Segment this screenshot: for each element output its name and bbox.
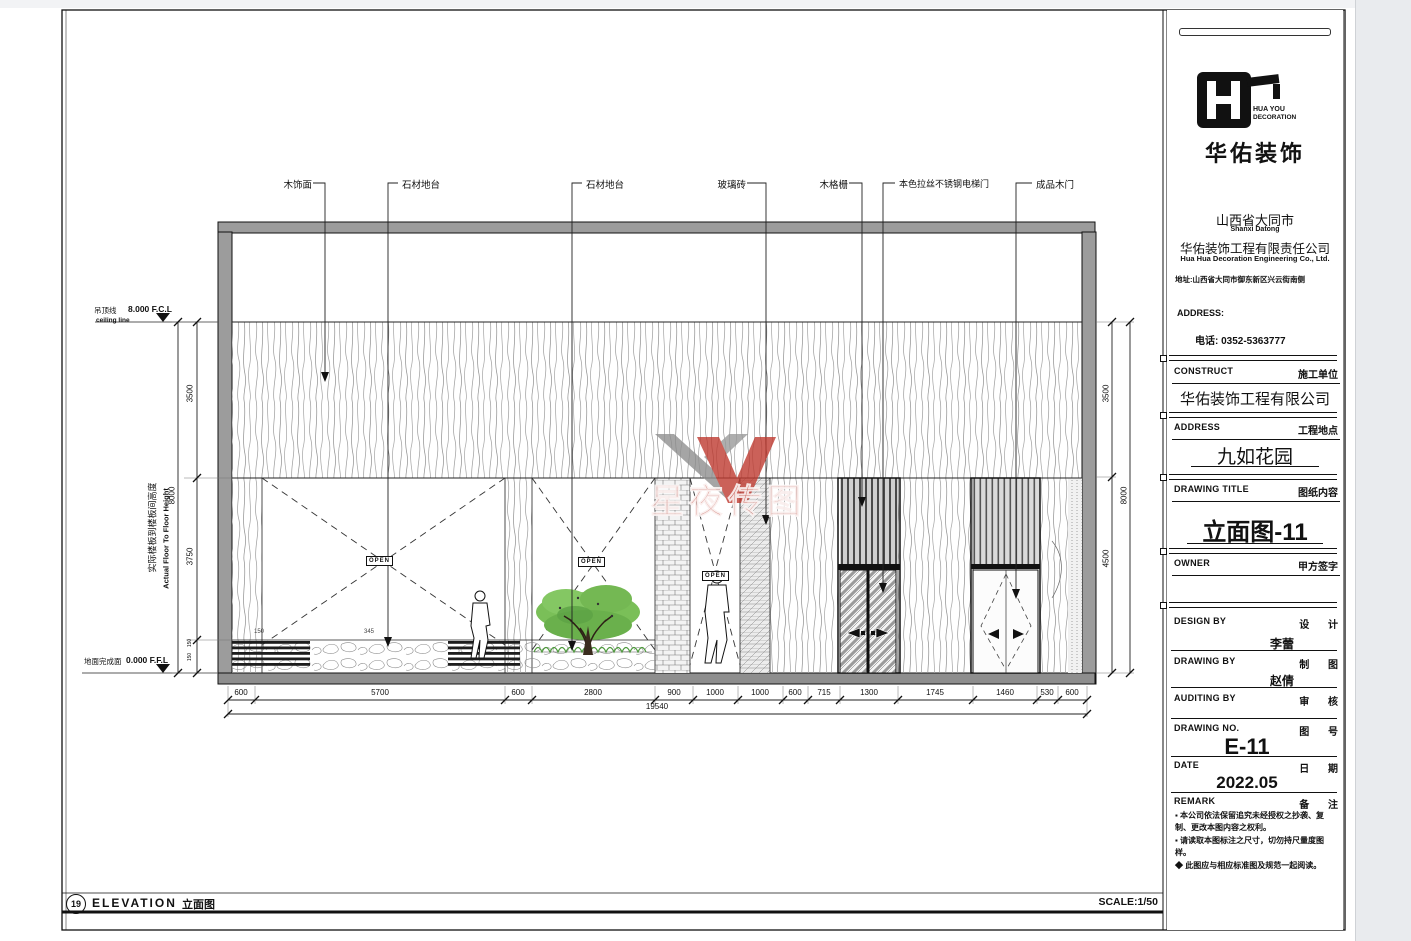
remark-label-cn: 备 注: [1299, 796, 1346, 811]
owner-label-cn: 甲方签字: [1298, 558, 1338, 573]
remark-note: ▪ 本公司依法保留追究未经授权之抄袭、复制、更改本图内容之权利。: [1175, 810, 1337, 835]
divider: [1169, 474, 1337, 480]
rule: [1171, 792, 1337, 793]
construct-label-en: CONSTRUCT: [1174, 366, 1233, 381]
divider: [1169, 602, 1337, 608]
dim-b3: 600: [498, 688, 538, 697]
dim-right-seg-2: 4500: [1102, 539, 1111, 579]
stone-platform: [232, 640, 655, 673]
dim-b4: 2800: [563, 688, 623, 697]
dim-b11: 1745: [912, 688, 958, 697]
title-block-top-bar: [1179, 28, 1331, 36]
dim-b9: 715: [806, 688, 842, 697]
dim-left-seg-2: 3750: [186, 537, 195, 577]
owner-row: OWNER 甲方签字: [1172, 558, 1340, 576]
drawing-title-label-cn: 图纸内容: [1298, 484, 1338, 499]
construct-value: 华佑装饰工程有限公司: [1167, 388, 1343, 409]
callout-glass-brick: 玻璃砖: [706, 177, 746, 191]
divider: [1169, 548, 1337, 554]
owner-label-en: OWNER: [1174, 558, 1210, 573]
callout-elevator-door: 本色拉丝不锈钢电梯门: [899, 177, 989, 190]
floor-level-label: 地面完成面: [84, 656, 122, 667]
draft-row: DRAWING BY 制 图: [1172, 656, 1340, 673]
date-value: 2022.05: [1177, 773, 1317, 793]
dim-b2: 5700: [340, 688, 420, 697]
dim-b5: 900: [654, 688, 694, 697]
rule: [1171, 756, 1337, 757]
design-row: DESIGN BY 设 计: [1172, 616, 1340, 633]
dim-platform-1: 150: [254, 629, 264, 635]
firm-phone: 电话: 0352-5363777: [1195, 332, 1286, 347]
divider: [1169, 412, 1337, 418]
site-row: ADDRESS 工程地点: [1172, 422, 1340, 440]
draft-label-cn: 制 图: [1299, 656, 1346, 671]
firm-address: 地址:山西省大同市御东新区兴云街南侧: [1175, 274, 1305, 285]
figure-number-badge: 19: [66, 894, 86, 914]
callout-wood-grille: 木格栅: [804, 177, 848, 191]
site-label-en: ADDRESS: [1174, 422, 1220, 437]
draft-label-en: DRAWING BY: [1174, 656, 1236, 671]
floor-height-axis-en: Actual Floor To Floor Height: [162, 439, 171, 639]
dim-b6: 1000: [692, 688, 738, 697]
drawing-title-label-en: DRAWING TITLE: [1174, 484, 1249, 499]
callout-stone-platform-2: 石材地台: [586, 177, 624, 191]
brand-en-line2: DECORATION: [1253, 114, 1296, 121]
callout-wood-finish: 木饰面: [258, 177, 312, 191]
dim-right-overall: 8000: [1120, 476, 1129, 516]
footer-scale: SCALE:1/50: [1040, 896, 1158, 908]
audit-label-cn: 审 核: [1299, 693, 1346, 708]
open-label-1: OPEN: [366, 556, 393, 566]
ceiling-level-value: 8.000 F.C.L: [128, 304, 172, 314]
footer-title-en: ELEVATION: [92, 896, 177, 910]
dim-b12: 1460: [982, 688, 1028, 697]
dim-b1: 600: [221, 688, 261, 697]
audit-label-en: AUDITING BY: [1174, 693, 1236, 708]
footer-rules: [62, 893, 1163, 912]
dim-left-step-2: 150: [187, 645, 193, 669]
construct-row: CONSTRUCT 施工单位: [1172, 366, 1340, 384]
audit-row: AUDITING BY 审 核: [1172, 693, 1340, 710]
open-label-3: OPEN: [702, 571, 729, 581]
rule: [1171, 718, 1337, 719]
firm-address-label: ADDRESS:: [1177, 308, 1224, 318]
callout-stone-platform-1: 石材地台: [402, 177, 440, 191]
dim-left-overall: 8000: [168, 476, 177, 516]
firm-city-en: Shanxi Datong: [1167, 226, 1343, 233]
site-label-cn: 工程地点: [1298, 422, 1338, 437]
remark-notes: ▪ 本公司依法保留追究未经授权之抄袭、复制、更改本图内容之权利。 ▪ 请读取本图…: [1175, 810, 1337, 872]
site-value-underline: [1191, 466, 1319, 467]
remark-note: ▪ 请读取本图标注之尺寸，切勿持尺量度图样。: [1175, 835, 1337, 860]
drawing-title-row: DRAWING TITLE 图纸内容: [1172, 484, 1340, 502]
design-label-cn: 设 计: [1299, 616, 1346, 631]
site-value: 九如花园: [1167, 442, 1343, 469]
ceiling-level-label: 吊顶线: [94, 305, 117, 316]
logo-roller-handle: [1273, 84, 1280, 99]
ceiling-level-sub: ceiling line: [96, 317, 130, 324]
rule: [1171, 687, 1337, 688]
dim-left-seg-1: 3500: [186, 374, 195, 414]
callout-finished-wood-door: 成品木门: [1036, 177, 1074, 191]
dim-b14: 600: [1054, 688, 1090, 697]
construct-label-cn: 施工单位: [1298, 366, 1338, 381]
dim-right-seg-1: 3500: [1102, 374, 1111, 414]
watermark-text: 星夜传图: [650, 474, 806, 523]
firm-name-en: Hua Hua Decoration Engineering Co., Ltd.: [1167, 254, 1343, 263]
rule: [1171, 650, 1337, 651]
floor-height-axis-cn: 实际楼板到楼板间高度: [146, 453, 159, 603]
title-block: HUA YOU DECORATION 华佑装饰 山西省大同市 Shanxi Da…: [1167, 10, 1343, 930]
divider: [1169, 355, 1337, 361]
dim-platform-2: 345: [364, 629, 374, 635]
remark-note: ◆ 此图应与相应标准图及规范一起阅读。: [1175, 860, 1337, 872]
drawing-sheet: 木饰面 石材地台 石材地台 玻璃砖 木格栅 本色拉丝不锈钢电梯门 成品木门 OP…: [0, 0, 1411, 941]
drawing-title-value: 立面图-11: [1167, 512, 1343, 547]
elevator-door: [838, 478, 900, 673]
dim-b10: 1300: [846, 688, 892, 697]
open-label-2: OPEN: [578, 557, 605, 567]
remark-label-en: REMARK: [1174, 796, 1215, 811]
drawing-title-underline: [1187, 543, 1323, 544]
design-label-en: DESIGN BY: [1174, 616, 1226, 631]
brand-en-line1: HUA YOU: [1253, 106, 1285, 113]
floor-level-value: 0.000 F.F.L: [126, 655, 168, 665]
brand-cn: 华佑装饰: [1167, 136, 1343, 168]
footer-title-cn: 立面图: [182, 896, 215, 912]
company-logo: [1197, 72, 1251, 128]
dim-bottom-overall: 19540: [597, 702, 717, 711]
